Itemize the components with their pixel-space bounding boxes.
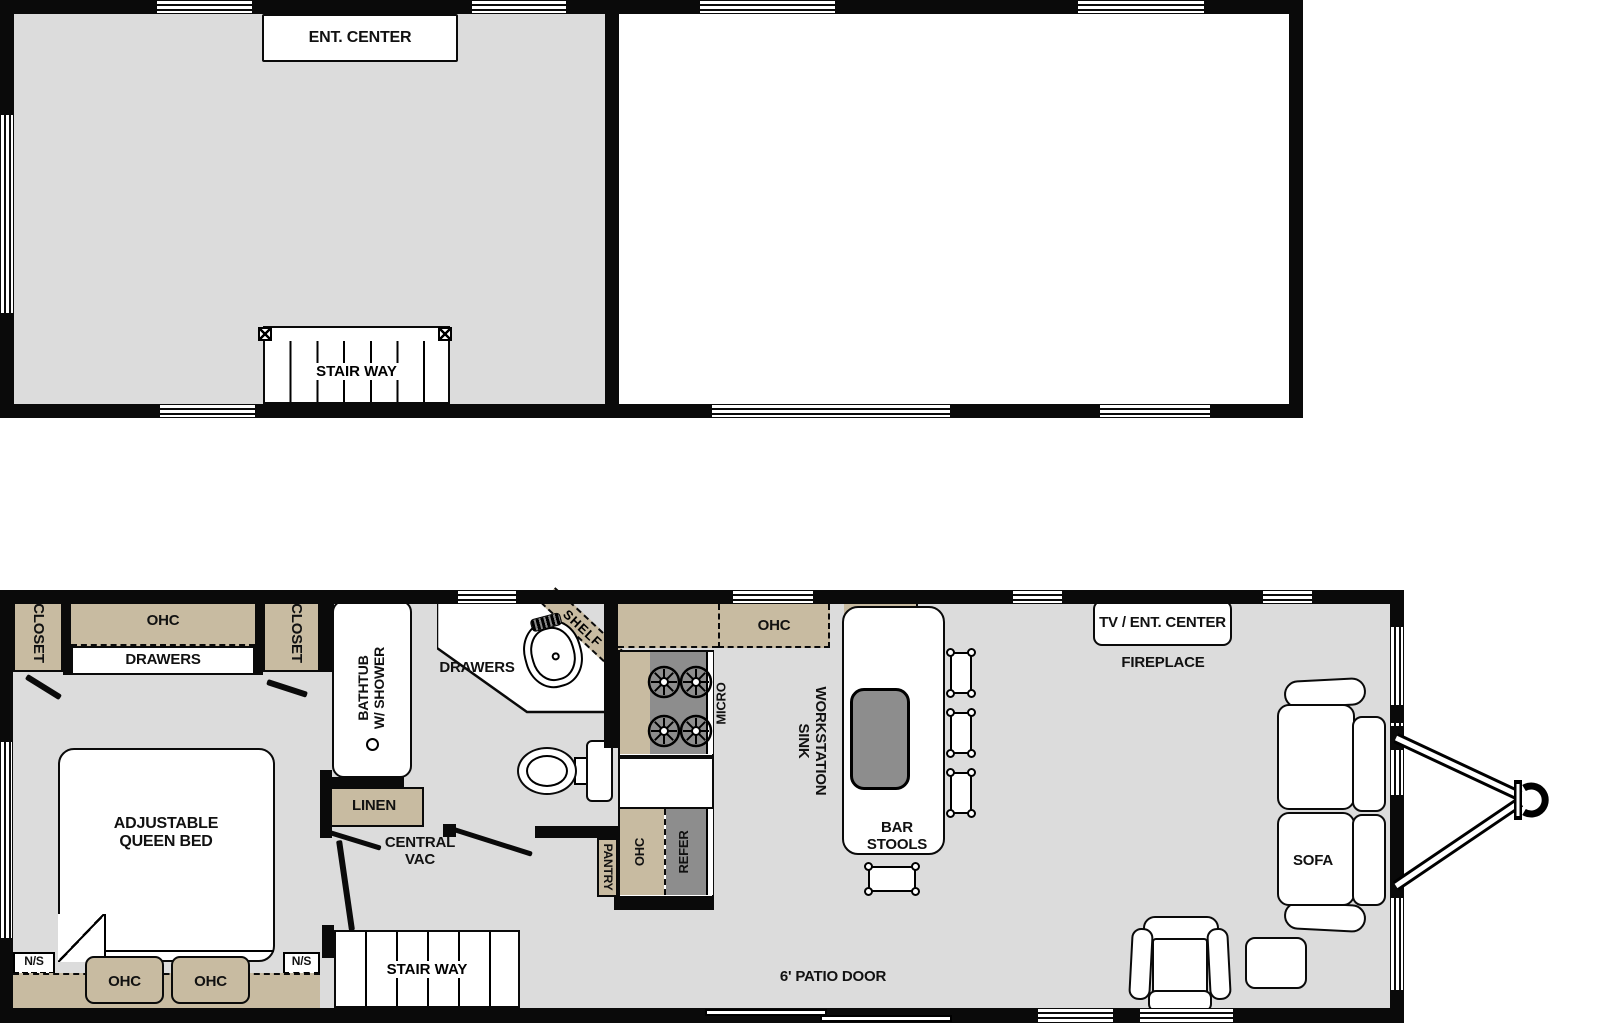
- sofa-back-cushion: [1352, 716, 1386, 812]
- main-stair-treads: STAIR WAY: [334, 930, 520, 1008]
- text: OHC: [108, 973, 141, 990]
- kitchen-ohc-side-label: OHC: [633, 826, 647, 878]
- micro-label: MICRO: [715, 676, 730, 732]
- recliner-arm: [1206, 927, 1232, 1000]
- text: SOFA: [1293, 852, 1333, 869]
- window: [458, 591, 516, 603]
- bedroom-ohc-label: OHC: [133, 613, 193, 629]
- ohc-bottom-left-label: OHC: [85, 974, 164, 990]
- text: VAC: [405, 851, 435, 868]
- floorplan-canvas: ENT. CENTER STAIR WAY: [0, 0, 1600, 1024]
- refer-label: REFER: [677, 824, 691, 880]
- bedroom-bottom-cabinet: [13, 973, 320, 1008]
- bed-fold-corner: [58, 914, 106, 962]
- text: REFER: [677, 830, 692, 873]
- recliner-seat: [1152, 938, 1208, 998]
- text: 6' PATIO DOOR: [780, 968, 886, 985]
- text: LINEN: [352, 797, 396, 814]
- text: BATHTUB: [355, 655, 371, 720]
- text: W/ SHOWER: [371, 647, 387, 729]
- window: [1391, 627, 1403, 705]
- text: DRAWERS: [439, 659, 514, 676]
- text: OHC: [633, 838, 648, 866]
- ohc-bottom-right-label: OHC: [171, 974, 250, 990]
- nightstand-left-label: N/S: [13, 954, 55, 970]
- text: CLOSET: [29, 603, 46, 663]
- wall: [614, 896, 714, 910]
- wall: [322, 925, 334, 958]
- text: CENTRAL: [385, 834, 455, 851]
- closet-left-label: CLOSET: [30, 603, 46, 663]
- bar-stool: [868, 866, 916, 892]
- sofa-back-cushion: [1352, 814, 1386, 906]
- wall: [604, 590, 618, 748]
- vanity-drawers-label: DRAWERS: [437, 660, 517, 676]
- text: OHC: [194, 973, 227, 990]
- window: [1391, 895, 1403, 990]
- text: N/S: [24, 955, 43, 969]
- closet-right-label: CLOSET: [288, 603, 304, 663]
- central-vac-label: CENTRAL VAC: [370, 833, 470, 869]
- window: [1013, 591, 1062, 603]
- bathtub-label: BATHTUB W/ SHOWER: [354, 628, 388, 748]
- toilet-bowl-inner: [526, 755, 568, 787]
- bar-stool: [950, 712, 972, 754]
- wall: [320, 597, 334, 672]
- window: [1038, 1009, 1113, 1022]
- bed-label: ADJUSTABLE QUEEN BED: [76, 811, 256, 855]
- cabinet-rail: [255, 597, 263, 675]
- toilet-tank: [586, 740, 613, 802]
- text: QUEEN BED: [119, 833, 212, 851]
- text: TV / ENT. CENTER: [1099, 614, 1226, 631]
- text: STOOLS: [867, 836, 927, 853]
- linen-label: LINEN: [324, 798, 424, 814]
- bed-sheet-line: [106, 950, 274, 952]
- sofa-label: SOFA: [1287, 853, 1339, 869]
- text: WORKSTATION: [812, 687, 829, 796]
- sofa-seat: [1277, 704, 1355, 810]
- pantry-label: PANTRY: [600, 836, 614, 898]
- trailer-hitch: [1390, 700, 1590, 900]
- workstation-sink: [850, 688, 910, 790]
- patio-door-panel: [820, 1015, 952, 1022]
- ottoman-table: [1245, 937, 1307, 989]
- text: PANTRY: [600, 844, 614, 891]
- text: OHC: [758, 617, 791, 634]
- patio-door-panel: [705, 1009, 827, 1016]
- bar-stools-label: BAR STOOLS: [857, 816, 937, 856]
- text: CLOSET: [287, 603, 304, 663]
- recliner-arm: [1128, 927, 1154, 1000]
- window: [1, 742, 12, 938]
- text: FIREPLACE: [1121, 654, 1204, 671]
- bar-stool: [950, 652, 972, 694]
- window: [1263, 591, 1312, 603]
- text: SINK: [795, 723, 812, 758]
- main-floor-plan: SHELF: [0, 0, 1600, 1024]
- text: BAR: [881, 819, 913, 836]
- cabinet-rail: [63, 597, 71, 675]
- kitchen-ohc-label: OHC: [744, 618, 804, 634]
- bar-stool: [950, 772, 972, 814]
- text: OHC: [147, 612, 180, 629]
- kitchen-counter-mid: [618, 757, 714, 809]
- text: N/S: [292, 955, 311, 969]
- fireplace-label: FIREPLACE: [1098, 655, 1228, 671]
- refer-handle: [706, 809, 713, 895]
- burner-icons: [618, 650, 714, 757]
- tv-ent-center-label: TV / ENT. CENTER: [1093, 600, 1232, 646]
- wall: [320, 777, 404, 787]
- text: DRAWERS: [125, 651, 200, 668]
- window: [1140, 1009, 1233, 1022]
- patio-door-label: 6' PATIO DOOR: [763, 969, 903, 985]
- window: [733, 591, 813, 603]
- main-stairway-label: STAIR WAY: [381, 961, 474, 978]
- text: MICRO: [715, 682, 730, 724]
- bedroom-drawers-label: DRAWERS: [123, 652, 203, 668]
- kitchen-counter-top: [618, 604, 718, 648]
- workstation-sink-label: WORKSTATION SINK: [793, 661, 831, 821]
- nightstand-right-label: N/S: [283, 954, 320, 970]
- text: ADJUSTABLE: [114, 815, 218, 833]
